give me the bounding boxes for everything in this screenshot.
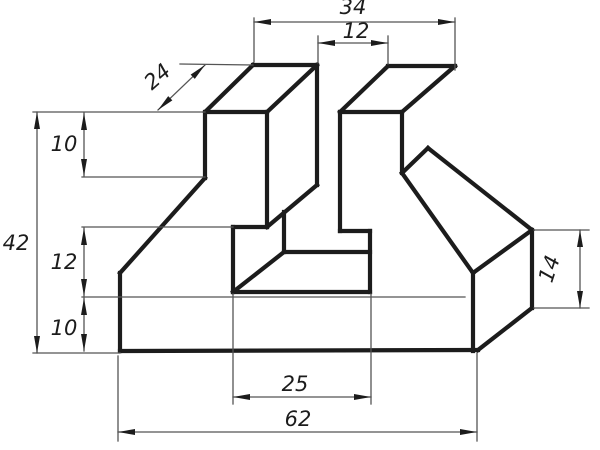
dimension-arrow: [233, 394, 250, 400]
part-edge: [205, 65, 253, 112]
dimension-label: 12: [51, 250, 78, 274]
part-edge: [267, 65, 317, 112]
dimension-arrow: [371, 40, 388, 46]
dimension-label: 14: [534, 252, 565, 285]
dimension-arrow: [34, 336, 40, 353]
dimension-arrow: [254, 19, 271, 25]
dimension-base-thickness: 10: [51, 298, 87, 351]
dimension-overall-height: 42: [3, 112, 40, 353]
dimension-arrow: [354, 394, 371, 400]
part-edge: [340, 66, 388, 112]
dimension-flange-thickness: 10: [51, 113, 87, 176]
part-edge: [267, 185, 317, 227]
dimension-arrow: [81, 228, 87, 245]
dimension-arrow: [81, 113, 87, 130]
dimension-arrow: [34, 112, 40, 129]
dimension-arrow: [577, 230, 583, 247]
dimension-label: 62: [285, 407, 312, 431]
dimension-slot-opening-width: 25: [233, 372, 371, 400]
dimension-arrow: [118, 429, 135, 435]
dimension-arrow: [460, 429, 477, 435]
dimension-label: 34: [340, 0, 367, 19]
dimension-arrow: [438, 19, 455, 25]
dimension-right-face-height: 14: [534, 230, 583, 308]
part-edge: [402, 66, 455, 112]
part-edge: [478, 308, 532, 350]
dimension-flange-depth: 24: [139, 59, 205, 110]
part-edge: [233, 252, 284, 292]
dimension-arrow: [81, 334, 87, 351]
part-edge: [402, 173, 473, 273]
dimension-arrow: [81, 298, 87, 315]
dimension-arrow: [577, 291, 583, 308]
dimension-label: 12: [343, 19, 370, 43]
dimension-arrow: [318, 40, 335, 46]
dimension-arrow: [158, 96, 172, 110]
dimension-label: 42: [3, 231, 30, 255]
part-edge: [120, 350, 478, 351]
dimension-arrow: [81, 159, 87, 176]
dimension-label: 25: [282, 372, 309, 396]
part-edge: [428, 148, 532, 230]
dimension-label: 10: [51, 316, 78, 340]
dimension-slot-width: 12: [318, 19, 388, 46]
drawing-canvas: 34122410421210142562: [0, 0, 600, 450]
dimension-arrow: [81, 279, 87, 296]
part-edge: [473, 230, 532, 273]
dimension-label: 24: [139, 59, 175, 95]
dimension-mid-step-height: 12: [51, 228, 87, 296]
technical-drawing: 34122410421210142562: [0, 0, 600, 450]
dimension-label: 10: [51, 132, 78, 156]
part-edge: [120, 178, 205, 273]
dimension-arrow: [191, 65, 205, 79]
extension-line: [180, 64, 253, 65]
dimension-overall-length: 62: [118, 407, 477, 435]
part-edge: [402, 148, 428, 173]
